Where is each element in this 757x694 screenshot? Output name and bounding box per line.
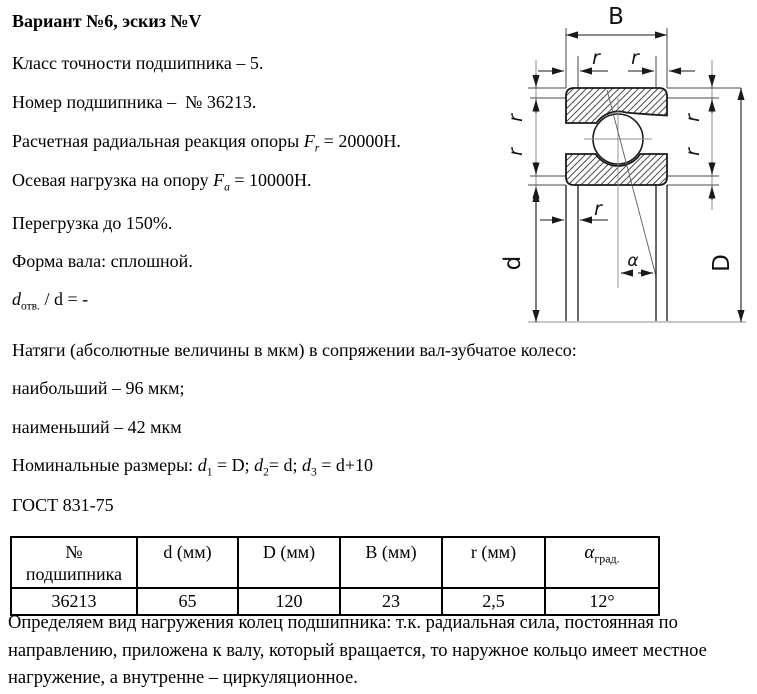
nominal-d2: d xyxy=(254,455,263,475)
bearing-sketch: B r r r r r r r d D α xyxy=(480,0,757,335)
nominal-prefix: Номинальные размеры: xyxy=(12,455,198,475)
line-precision-class: Класс точности подшипника – 5. xyxy=(12,52,263,74)
shaft-lines xyxy=(566,185,667,321)
radial-prefix: Расчетная радиальная реакция опоры xyxy=(12,131,304,151)
line-interference-min: наименьший – 42 мкм xyxy=(12,416,182,438)
line-radial-reaction: Расчетная радиальная реакция опоры Fr = … xyxy=(12,130,401,152)
nominal-d3: d xyxy=(302,455,311,475)
line-overload: Перегрузка до 150%. xyxy=(12,212,172,234)
outer-diameter-label: D xyxy=(709,254,735,272)
table-header-row: №подшипника d (мм) D (мм) B (мм) r (мм) … xyxy=(11,537,659,588)
document-title: Вариант №6, эскиз №V xyxy=(12,10,202,32)
width-label: B xyxy=(608,4,624,30)
line-nominal-sizes: Номинальные размеры: d1 = D; d2= d; d3 =… xyxy=(12,454,373,476)
axial-symbol: F xyxy=(213,170,224,190)
radial-value: = 20000Н. xyxy=(319,131,401,151)
bore-rest: / d = - xyxy=(40,289,88,309)
chamfer-label-top-2: r xyxy=(631,47,640,69)
header-r: r (мм) xyxy=(442,537,545,588)
bearing-spec-table: №подшипника d (мм) D (мм) B (мм) r (мм) … xyxy=(10,536,660,616)
conclusion-paragraph: Определяем вид нагружения колец подшипни… xyxy=(8,610,755,693)
nominal-eq3: = d+10 xyxy=(317,455,373,475)
line-interference-title: Натяги (абсолютные величины в мкм) в соп… xyxy=(12,339,577,361)
axial-prefix: Осевая нагрузка на опору xyxy=(12,170,213,190)
bore-symbol: d xyxy=(12,289,21,309)
nominal-d1: d xyxy=(198,455,207,475)
chamfer-label-bottom: r xyxy=(594,198,603,220)
header-d: d (мм) xyxy=(137,537,238,588)
chamfer-label-right-2: r xyxy=(682,147,704,156)
chamfer-label-left-2: r xyxy=(505,147,527,156)
chamfer-label-left-1: r xyxy=(505,113,527,122)
chamfer-label-right-1: r xyxy=(682,113,704,122)
line-axial-load: Осевая нагрузка на опору Fa = 10000Н. xyxy=(12,169,312,191)
line-bearing-number: Номер подшипника – № 36213. xyxy=(12,91,256,113)
radial-symbol: F xyxy=(304,131,315,151)
axial-value: = 10000Н. xyxy=(230,170,312,190)
document-page: Вариант №6, эскиз №V Класс точности подш… xyxy=(0,0,757,694)
line-interference-max: наибольший – 96 мкм; xyxy=(12,377,185,399)
header-D: D (мм) xyxy=(238,537,340,588)
line-gost-standard: ГОСТ 831-75 xyxy=(12,494,114,516)
header-alpha: αград. xyxy=(545,537,659,588)
bore-diameter-label: d xyxy=(500,256,526,271)
contact-angle-label: α xyxy=(627,251,638,271)
header-bearing-number: №подшипника xyxy=(11,537,137,588)
line-bore-ratio: dотв. / d = - xyxy=(12,288,88,310)
bore-subscript: отв. xyxy=(21,301,40,313)
chamfer-label-top-1: r xyxy=(592,47,601,69)
nominal-eq1: = D; xyxy=(212,455,254,475)
line-shaft-form: Форма вала: сплошной. xyxy=(12,250,193,272)
header-B: B (мм) xyxy=(340,537,442,588)
nominal-eq2: = d; xyxy=(269,455,302,475)
